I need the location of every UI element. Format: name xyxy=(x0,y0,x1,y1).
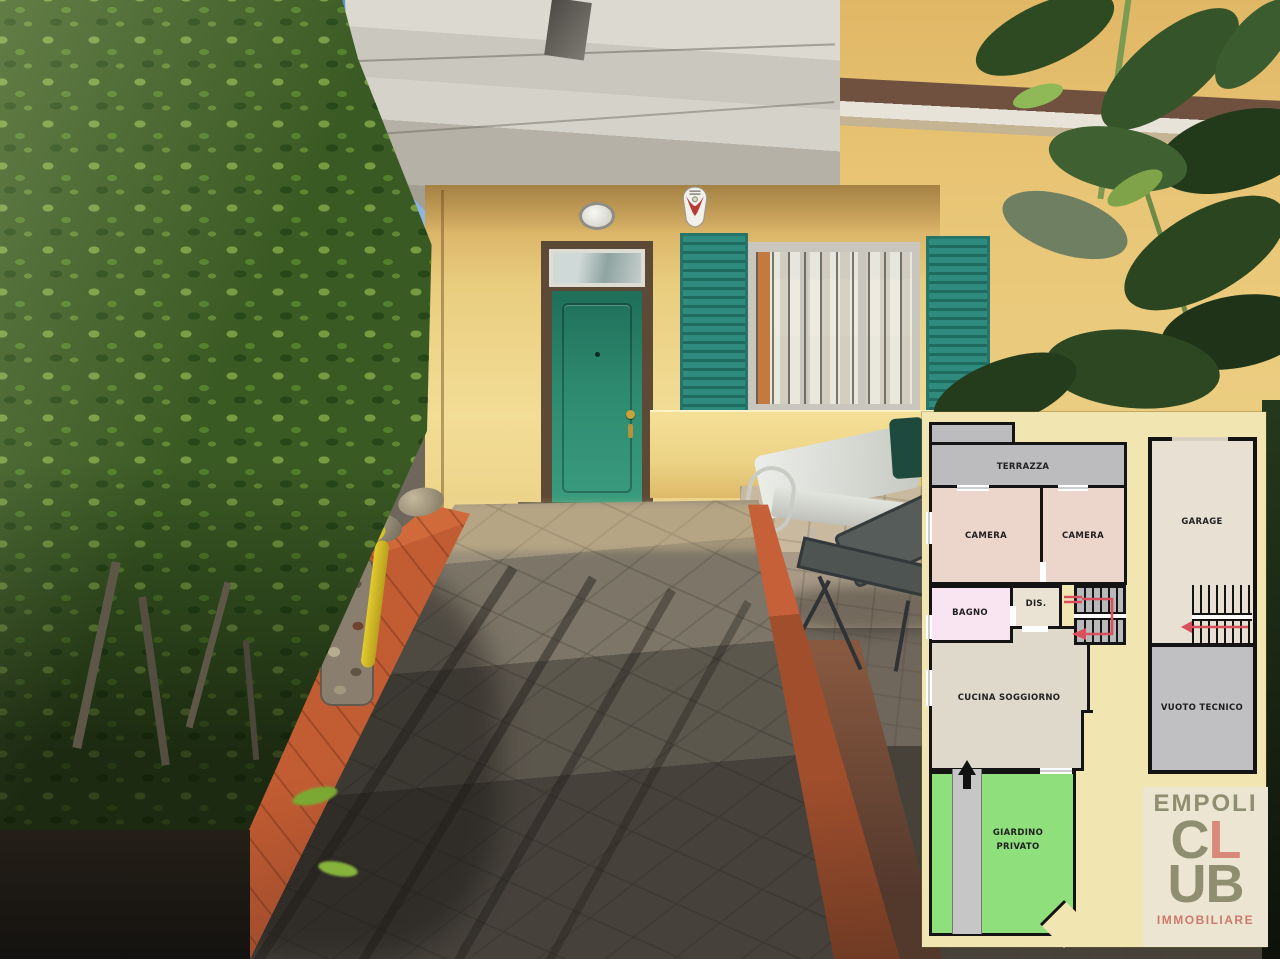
room-label-giardino-2: PRIVATO xyxy=(997,842,1040,852)
plan-window xyxy=(1040,768,1072,774)
stairs-direction-arrow-icon xyxy=(1178,619,1252,635)
plan-garage-door-gap xyxy=(1172,437,1228,441)
logo-letter-b: B xyxy=(1206,854,1244,914)
laurel-leaf xyxy=(964,0,1125,93)
room-label-terrazza: TERRAZZA xyxy=(997,462,1050,472)
wall-corner-edge xyxy=(441,190,444,510)
stairs-direction-arrow-icon xyxy=(1060,588,1130,648)
plan-opening xyxy=(1058,485,1088,491)
floor-plan-overlay: TERRAZZA CAMERA CAMERA BAGNO DIS. CUCINA… xyxy=(922,412,1266,947)
laurel-leaf-highlight xyxy=(1010,78,1066,113)
agency-logo: EMPOLI CLUB IMMOBILIARE xyxy=(1143,787,1268,947)
transom-window xyxy=(549,249,645,287)
room-label-giardino-1: GIARDINO xyxy=(993,828,1043,838)
plan-cucina-jog-patch xyxy=(1081,710,1093,771)
logo-immobiliare-text: IMMOBILIARE xyxy=(1143,913,1268,927)
plan-window xyxy=(926,670,932,706)
entrance-arrow-icon xyxy=(958,760,976,775)
plan-window xyxy=(926,512,932,544)
door-peephole xyxy=(595,352,600,357)
downspout xyxy=(544,0,592,61)
logo-letter-u: U xyxy=(1168,854,1206,914)
room-label-garage: GARAGE xyxy=(1181,517,1222,527)
room-label-cucina: CUCINA SOGGIORNO xyxy=(958,693,1061,703)
laurel-branch xyxy=(860,0,1280,452)
room-label-camera-left: CAMERA xyxy=(965,531,1007,541)
plan-door-gap xyxy=(1040,562,1046,582)
listing-photo: TERRAZZA CAMERA CAMERA BAGNO DIS. CUCINA… xyxy=(0,0,1280,959)
plan-room-garage xyxy=(1148,437,1257,774)
path-sunlit-patch xyxy=(450,503,760,551)
room-label-vuoto: VUOTO TECNICO xyxy=(1161,703,1243,713)
room-label-camera-right: CAMERA xyxy=(1062,531,1104,541)
logo-club-letters: CLUB xyxy=(1143,818,1268,907)
plan-door-gap xyxy=(1010,606,1016,626)
ceiling-lamp xyxy=(579,202,615,230)
plan-walkway xyxy=(952,769,982,934)
plan-window xyxy=(926,615,932,639)
alarm-siren-icon xyxy=(680,186,710,228)
door-panel xyxy=(562,303,632,493)
door-handle xyxy=(626,410,635,419)
room-label-dis: DIS. xyxy=(1026,599,1047,609)
plan-door-gap xyxy=(1022,626,1048,632)
plan-opening xyxy=(957,485,989,491)
room-label-bagno: BAGNO xyxy=(952,608,988,618)
door-keyplate xyxy=(628,424,633,438)
entrance-arrow-stem xyxy=(963,774,971,789)
under-hedge-ground xyxy=(0,830,250,959)
